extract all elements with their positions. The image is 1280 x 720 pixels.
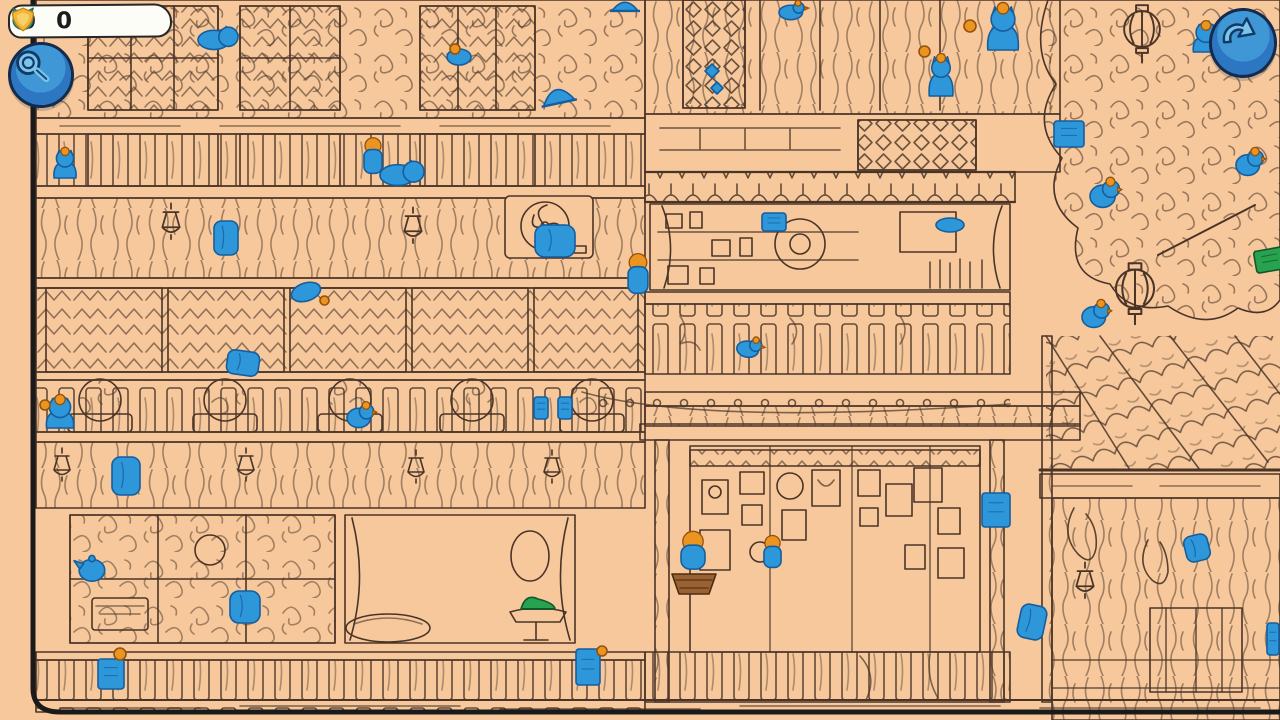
orange-ball[interactable] [320,296,329,305]
game-stage: 0 0 [0,0,1280,720]
hidden-cloth[interactable] [225,349,260,377]
orange-ball[interactable] [450,44,460,54]
hidden-person[interactable] [628,254,648,294]
hidden-tag[interactable] [534,397,548,419]
orange-ball[interactable] [114,648,126,660]
coin-count: 0 [56,10,72,33]
orange-ball[interactable] [964,20,976,32]
coin-counter: 0 [56,10,72,33]
orange-ball[interactable] [40,400,50,410]
left-shop-window-illustration [70,515,335,643]
hidden-item[interactable] [936,218,964,232]
hidden-robe[interactable] [112,457,140,495]
basket-illustration [672,574,716,594]
orange-ball[interactable] [597,646,607,656]
scene-illustration [0,0,1280,720]
gold-badge-icon [10,6,36,32]
magnifying-glass-icon [9,44,54,89]
hidden-person[interactable] [364,138,382,174]
hidden-book[interactable] [1253,247,1280,274]
hidden-person-basket[interactable] [681,531,705,569]
orange-ball[interactable] [919,46,930,57]
hidden-box[interactable] [576,649,600,685]
hidden-robe[interactable] [214,221,238,255]
counter-pill: 0 0 [8,3,172,38]
hidden-screen[interactable] [1054,121,1084,147]
roof-illustration [1040,336,1280,720]
undo-arrow-icon [1211,9,1258,57]
hidden-box[interactable] [762,213,786,231]
hidden-jacket[interactable] [535,225,575,257]
hidden-tag[interactable] [558,397,572,419]
hidden-box[interactable] [1267,623,1279,655]
hidden-shirt[interactable] [230,591,260,623]
hidden-person[interactable] [764,536,781,568]
hidden-book[interactable] [982,493,1010,527]
hidden-box[interactable] [98,659,124,689]
